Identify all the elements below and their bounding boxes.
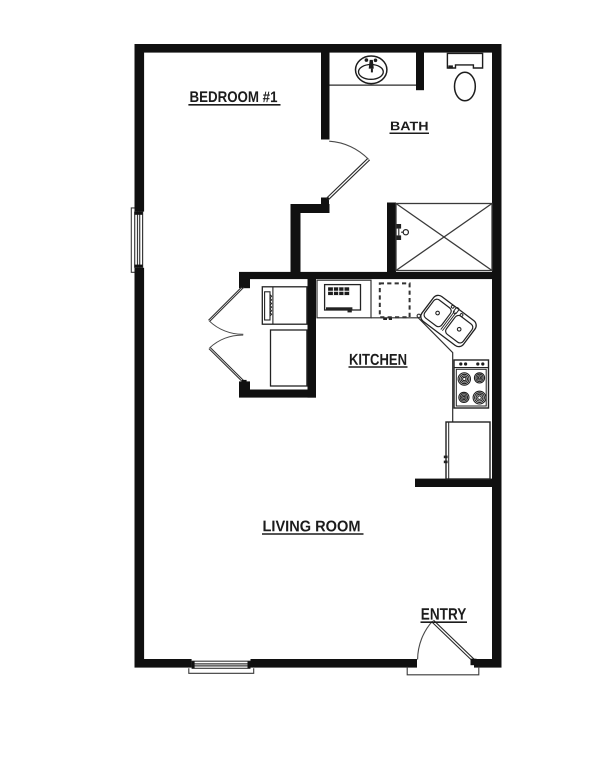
- svg-text:BEDROOM #1: BEDROOM #1: [189, 89, 277, 106]
- svg-text:LIVING ROOM: LIVING ROOM: [262, 518, 360, 535]
- svg-text:ENTRY: ENTRY: [421, 605, 467, 624]
- svg-text:BATH: BATH: [390, 119, 429, 133]
